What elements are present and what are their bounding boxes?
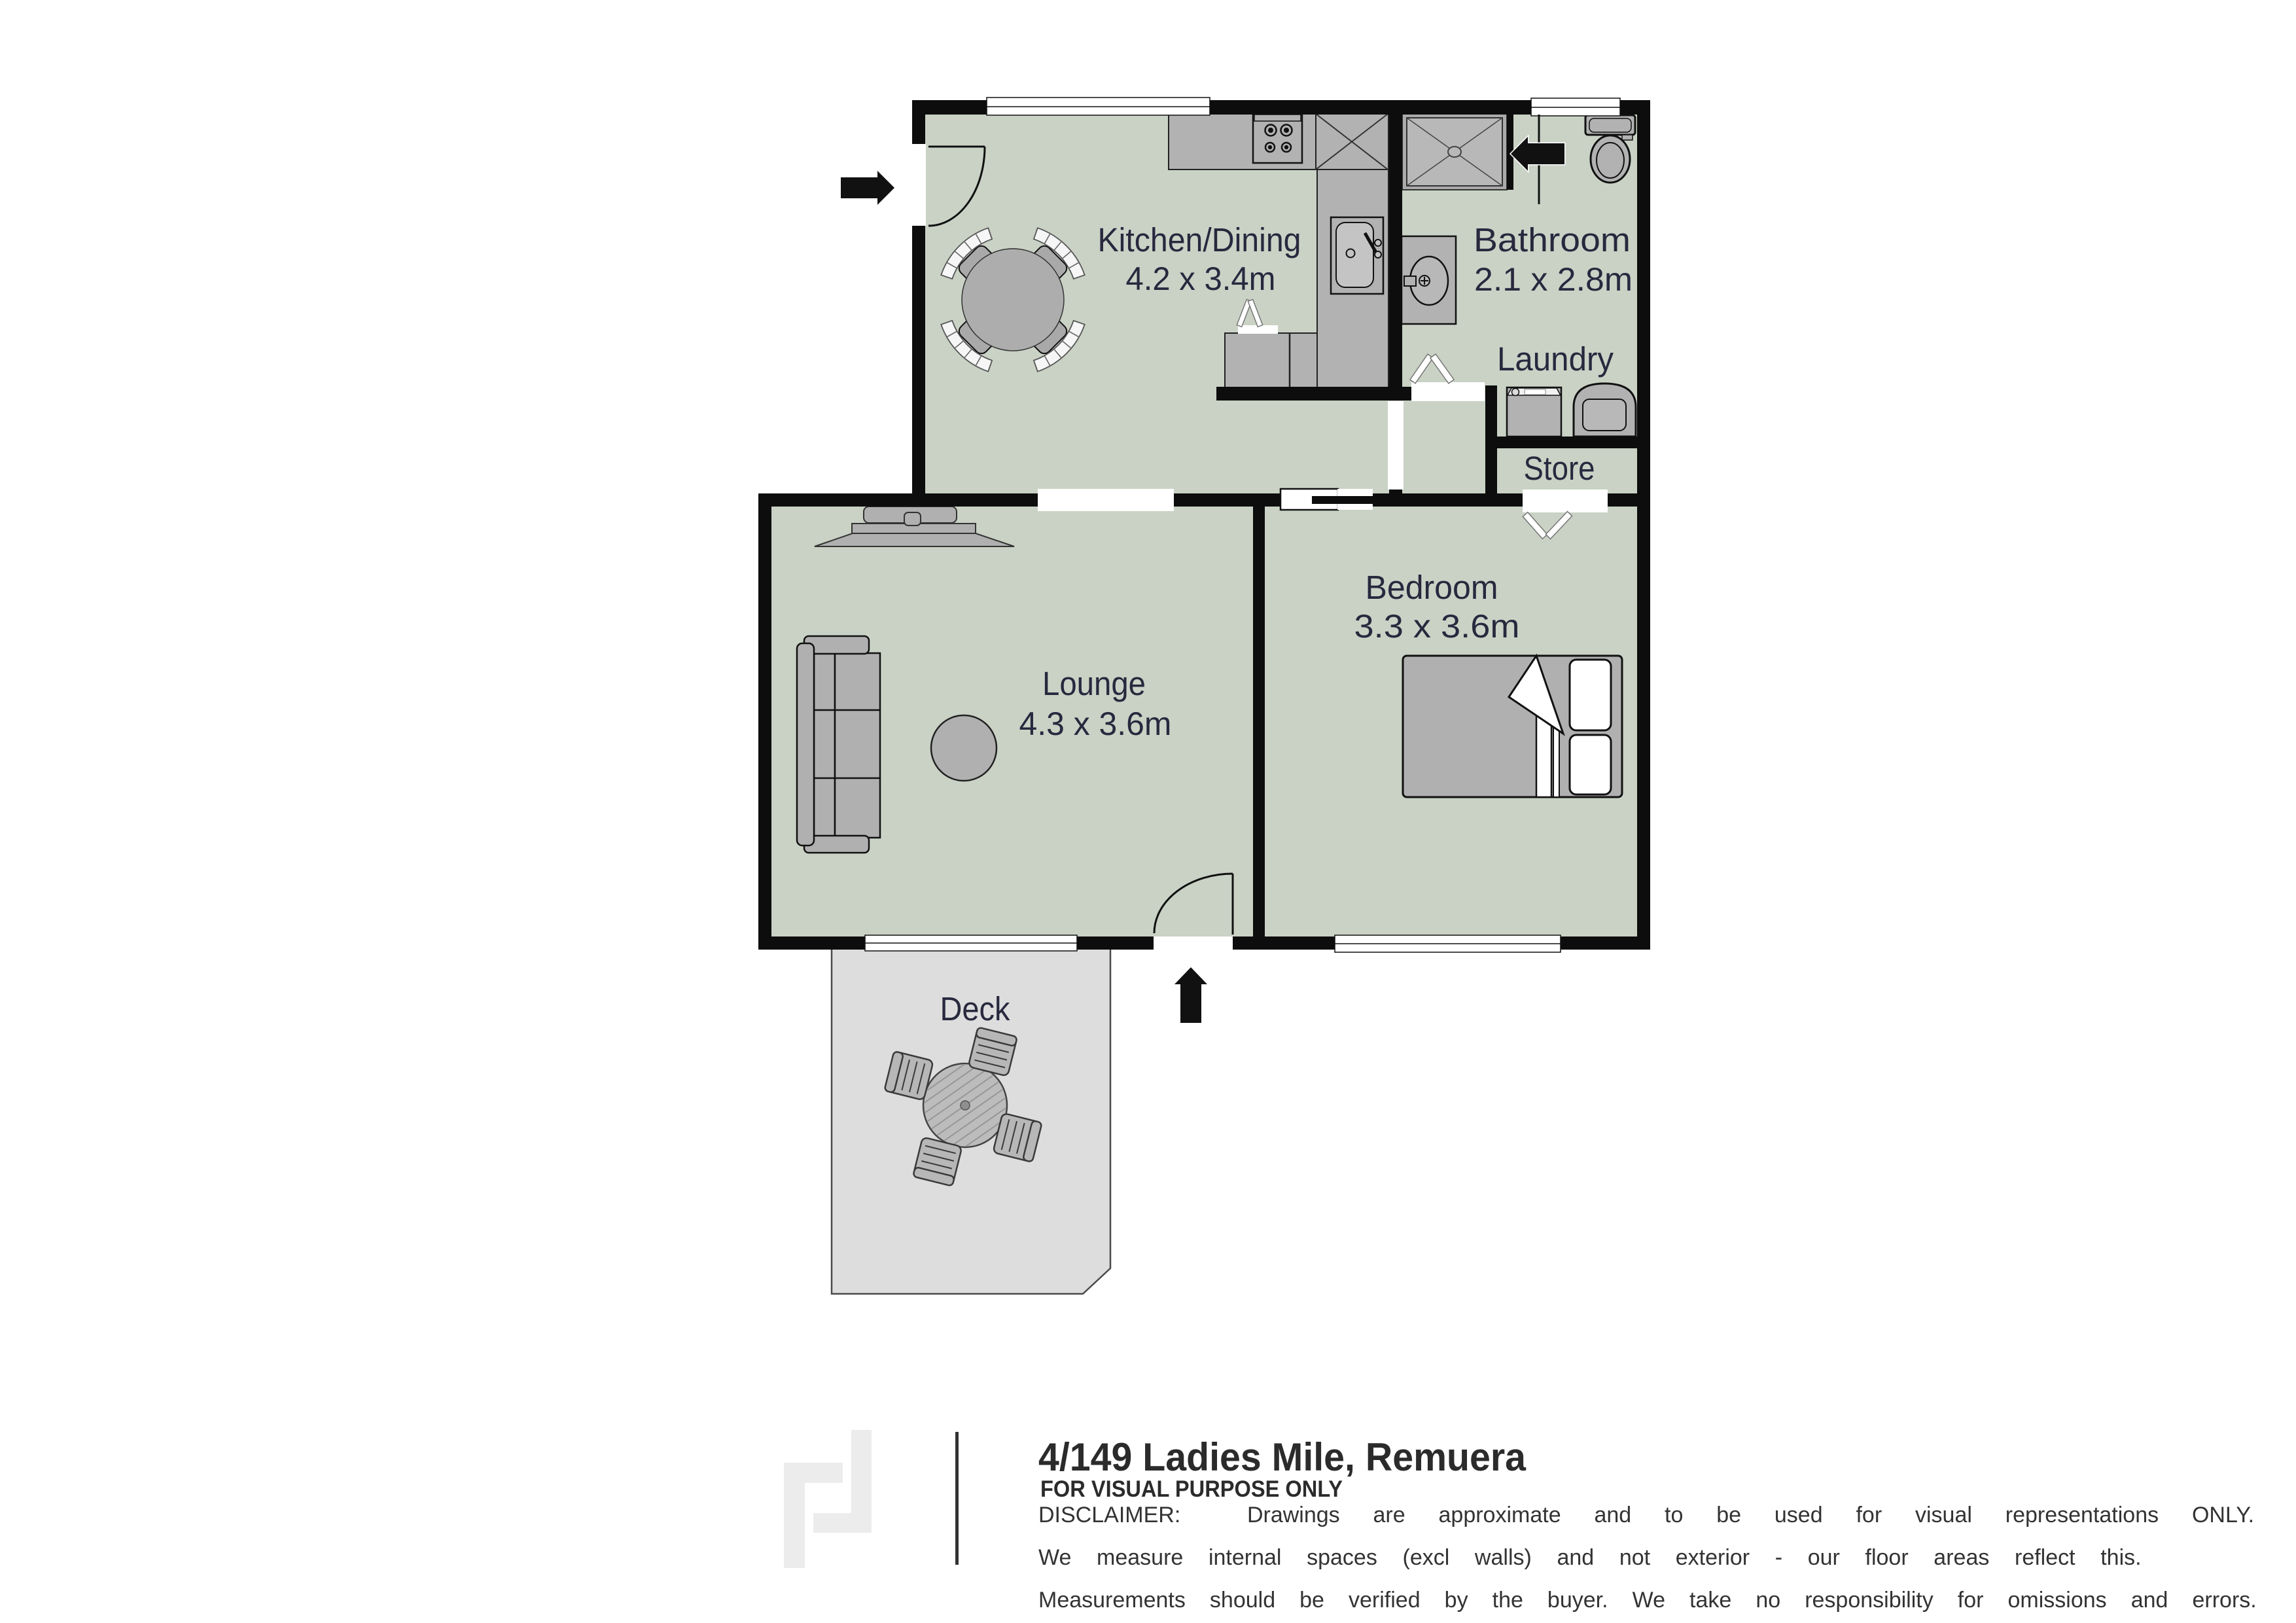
svg-text:4.2 x 3.4m: 4.2 x 3.4m (1126, 260, 1276, 297)
svg-text:FOR VISUAL PURPOSE ONLY: FOR VISUAL PURPOSE ONLY (1040, 1476, 1343, 1502)
svg-text:Lounge: Lounge (1042, 665, 1146, 702)
svg-text:Kitchen/Dining: Kitchen/Dining (1098, 221, 1301, 259)
svg-text:Measurements should be verifie: Measurements should be verified by the b… (1038, 1588, 2257, 1613)
svg-text:Bedroom: Bedroom (1366, 569, 1498, 606)
svg-text:We measure internal spaces (ex: We measure internal spaces (excl walls) … (1038, 1545, 2142, 1570)
svg-text:Deck: Deck (940, 990, 1010, 1027)
svg-text:4.3 x 3.6m: 4.3 x 3.6m (1019, 705, 1172, 742)
svg-text:3.3 x 3.6m: 3.3 x 3.6m (1354, 608, 1520, 645)
svg-text:Bathroom: Bathroom (1474, 221, 1631, 259)
svg-text:2.1 x 2.8m: 2.1 x 2.8m (1474, 261, 1633, 298)
svg-text:Laundry: Laundry (1497, 340, 1614, 378)
svg-text:4/149 Ladies Mile, Remuera: 4/149 Ladies Mile, Remuera (1038, 1435, 1527, 1479)
svg-text:Store: Store (1524, 450, 1595, 487)
svg-text:DISCLAIMER: Drawings are appr: DISCLAIMER: Drawings are approximate and… (1038, 1503, 2254, 1527)
